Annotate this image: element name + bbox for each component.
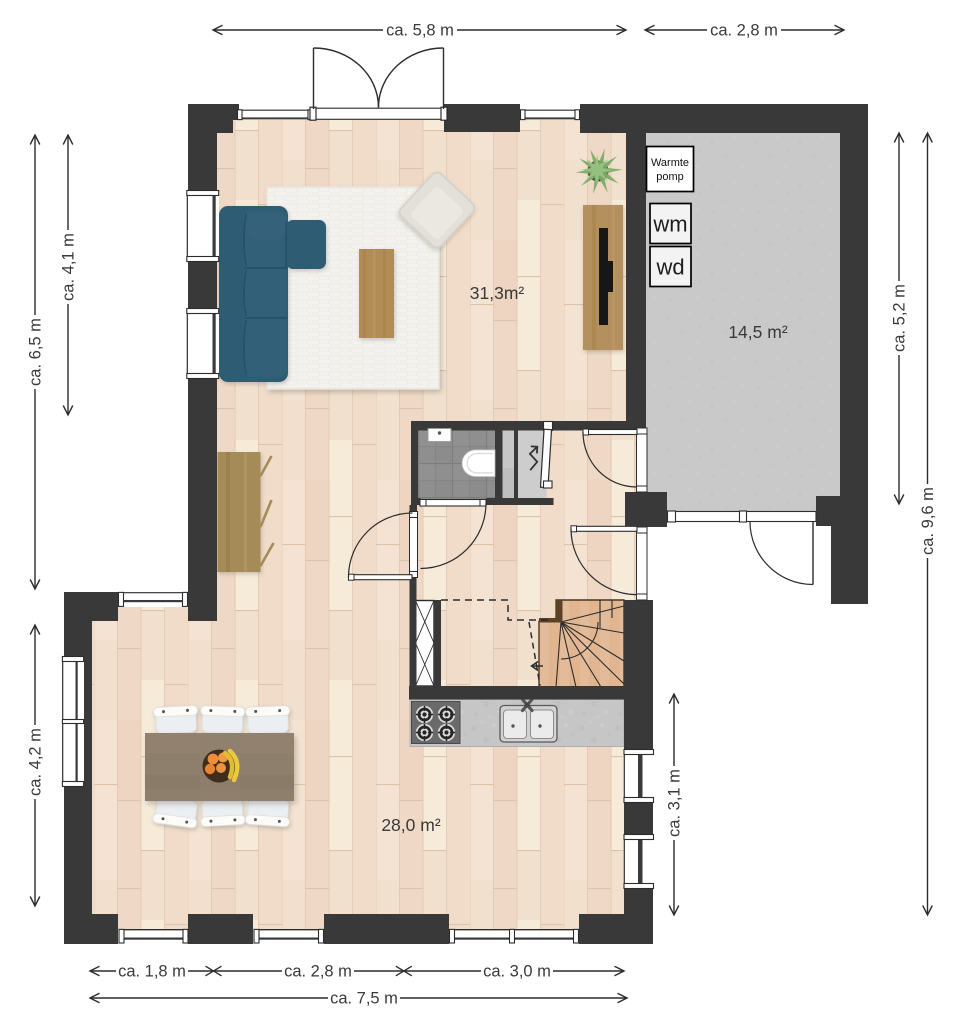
svg-text:ca. 9,6 m: ca. 9,6 m — [919, 487, 937, 555]
svg-text:wd: wd — [655, 255, 684, 280]
svg-text:ca. 7,5 m: ca. 7,5 m — [330, 990, 398, 1008]
svg-text:28,0 m²: 28,0 m² — [381, 815, 440, 835]
svg-text:ca. 6,5 m: ca. 6,5 m — [27, 318, 45, 386]
svg-text:ca. 1,8 m: ca. 1,8 m — [118, 963, 186, 981]
svg-text:ca. 4,1 m: ca. 4,1 m — [60, 233, 78, 301]
svg-text:wm: wm — [652, 212, 687, 237]
svg-text:31,3m²: 31,3m² — [470, 283, 525, 303]
svg-text:ca. 4,2 m: ca. 4,2 m — [27, 728, 45, 796]
svg-text:ca. 5,8 m: ca. 5,8 m — [386, 22, 454, 40]
svg-text:ca. 3,0 m: ca. 3,0 m — [483, 963, 551, 981]
svg-text:pomp: pomp — [656, 171, 684, 183]
svg-text:Warmte: Warmte — [651, 157, 689, 169]
svg-text:14,5 m²: 14,5 m² — [728, 322, 787, 342]
svg-text:ca. 2,8 m: ca. 2,8 m — [710, 22, 778, 40]
svg-text:ca. 2,8 m: ca. 2,8 m — [284, 963, 352, 981]
svg-text:ca. 5,2 m: ca. 5,2 m — [891, 284, 909, 352]
svg-text:ca. 3,1 m: ca. 3,1 m — [666, 769, 684, 837]
